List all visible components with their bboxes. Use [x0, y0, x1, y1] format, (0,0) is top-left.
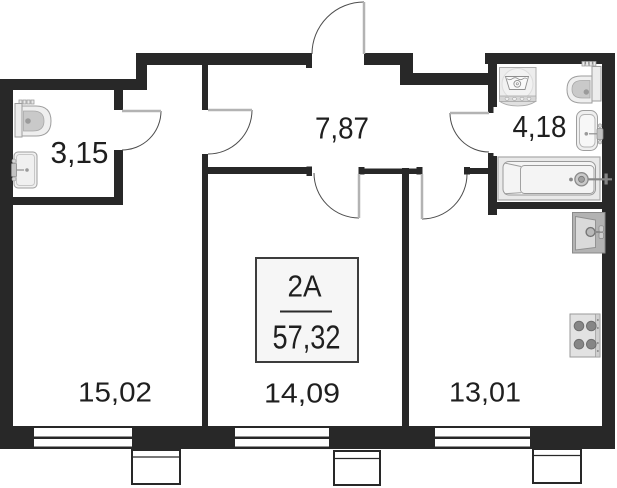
svg-text:4,18: 4,18 — [513, 110, 567, 144]
svg-text:15,02: 15,02 — [78, 377, 152, 408]
svg-text:7,87: 7,87 — [315, 112, 369, 146]
svg-text:57,32: 57,32 — [273, 319, 341, 356]
svg-text:13,01: 13,01 — [449, 377, 521, 408]
svg-text:3,15: 3,15 — [51, 136, 109, 170]
svg-text:2A: 2A — [288, 269, 322, 304]
svg-text:14,09: 14,09 — [264, 378, 340, 409]
